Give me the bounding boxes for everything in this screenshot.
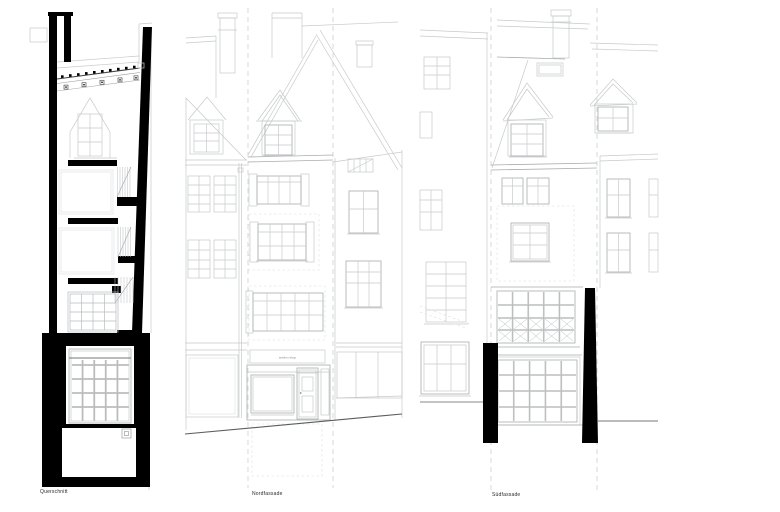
section-window-lower bbox=[69, 349, 131, 423]
north-basement-outline bbox=[252, 424, 322, 476]
section-window-upper bbox=[68, 292, 118, 332]
section-base-poche bbox=[42, 333, 150, 487]
south-center-building bbox=[483, 10, 598, 443]
south-glazing-lower bbox=[493, 357, 583, 425]
south-cut-wall-left bbox=[483, 343, 498, 443]
south-neighbor-dormer bbox=[590, 79, 637, 133]
north-dormer bbox=[256, 90, 302, 156]
south-window-mid bbox=[509, 223, 551, 262]
south-neighbor-windows-r2 bbox=[605, 233, 658, 273]
south-right-neighbor bbox=[590, 43, 658, 421]
section-floor-slabs bbox=[60, 160, 138, 343]
south-facade-drawing bbox=[419, 8, 658, 492]
south-neighbor-attic-window bbox=[420, 57, 450, 138]
north-shutter-dash-f3 bbox=[249, 286, 325, 340]
north-window-f2 bbox=[250, 222, 314, 262]
north-facade-drawing: antiken-shop bbox=[185, 8, 402, 488]
north-left-neighbor bbox=[185, 13, 247, 430]
south-shutter-dash bbox=[497, 206, 574, 281]
north-shop-door bbox=[297, 368, 318, 419]
south-neighbor-lower-window bbox=[419, 342, 471, 396]
section-basement-fixture bbox=[122, 429, 131, 438]
south-chimney bbox=[551, 10, 571, 58]
south-neighbor-shuttered-pair bbox=[424, 262, 468, 324]
north-shopfront bbox=[247, 365, 330, 420]
label-suedfassade: Südfassade bbox=[492, 492, 520, 498]
south-neighbor-windows-r1 bbox=[605, 179, 658, 218]
south-window-pair bbox=[502, 178, 549, 204]
section-drawing bbox=[30, 12, 152, 490]
north-neighbor-window-1 bbox=[347, 191, 380, 234]
south-left-neighbor bbox=[419, 30, 488, 402]
north-window-f1 bbox=[249, 174, 309, 206]
north-neighbor-window-2 bbox=[344, 261, 383, 308]
south-cut-wall-right bbox=[582, 288, 598, 443]
north-shop-window bbox=[251, 375, 294, 413]
drawing-sheet: antiken-shop bbox=[0, 0, 780, 512]
drawings-svg: antiken-shop bbox=[0, 0, 780, 512]
section-left-wall bbox=[49, 16, 57, 333]
section-attic-dormer bbox=[70, 98, 117, 158]
north-right-neighbor bbox=[335, 41, 402, 420]
north-shutter-dash-f2 bbox=[249, 214, 319, 270]
north-center-building: antiken-shop bbox=[238, 13, 402, 476]
north-attic-railing bbox=[348, 159, 373, 172]
label-querschnitt: Querschnitt bbox=[40, 489, 68, 495]
label-nordfassade: Nordfassade bbox=[252, 491, 283, 497]
south-glazing-upper bbox=[497, 291, 575, 343]
south-neighbor-window-mid bbox=[420, 190, 442, 230]
shop-sign-text: antiken-shop bbox=[279, 356, 297, 360]
south-dormer bbox=[503, 83, 553, 157]
north-window-f3 bbox=[246, 291, 323, 333]
section-context-block bbox=[30, 28, 47, 42]
